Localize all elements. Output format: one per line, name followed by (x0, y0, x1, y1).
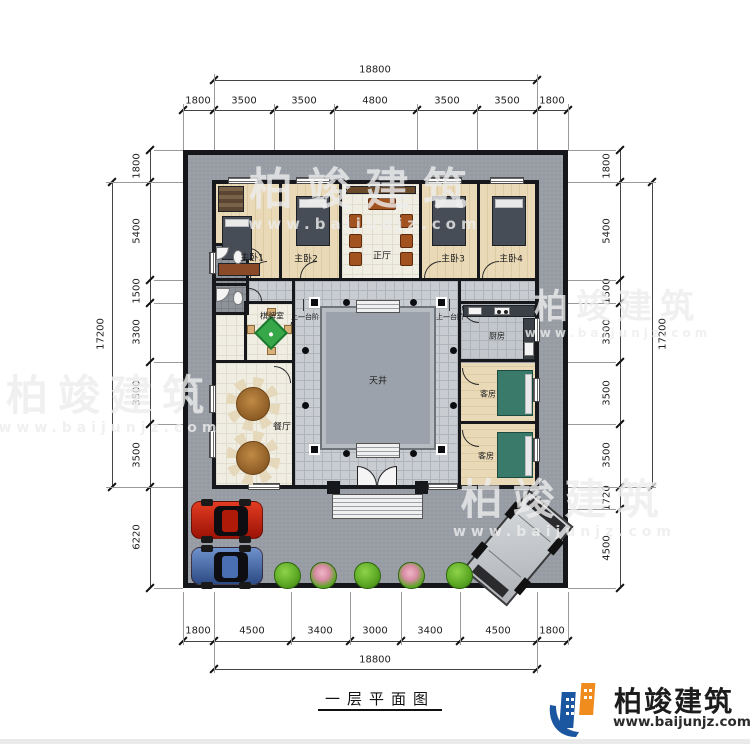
dim-label: 3500 (602, 380, 613, 405)
caption-underline (318, 709, 442, 711)
dim-label: 1800 (185, 96, 210, 107)
shrub (274, 562, 301, 589)
company-website: www.baijunjz.com (613, 714, 750, 730)
window (228, 177, 258, 184)
dim-label: 3000 (362, 626, 387, 637)
stove (494, 307, 510, 315)
wall (339, 182, 342, 280)
dim-line (112, 182, 113, 487)
window (428, 483, 458, 490)
label-master4: 主卧4 (499, 252, 523, 265)
window (533, 378, 540, 402)
dim-label: 1500 (132, 278, 143, 303)
dining-table (236, 441, 270, 475)
window (533, 438, 540, 462)
dim-label: 18800 (359, 65, 391, 76)
label-guest2: 客房 (478, 451, 494, 462)
sink (468, 307, 482, 315)
dim-tick (615, 583, 624, 592)
extension-line (460, 592, 461, 645)
dresser (218, 263, 260, 276)
dim-line (652, 182, 653, 487)
window (209, 430, 216, 458)
dim-label: 1800 (539, 626, 564, 637)
window (209, 385, 216, 413)
dim-label: 6220 (132, 524, 143, 549)
wall (458, 301, 539, 304)
column-dot (302, 347, 309, 354)
toilet (233, 291, 243, 305)
dim-line (183, 641, 568, 642)
shrub (398, 562, 425, 589)
dim-line (214, 669, 537, 670)
column-dot (450, 402, 457, 409)
dim-line (150, 150, 151, 588)
bed (492, 196, 526, 246)
wall (458, 421, 539, 424)
column (436, 444, 447, 455)
label-master3: 主卧3 (441, 252, 465, 265)
dim-label: 4500 (602, 535, 613, 560)
dim-label: 3400 (417, 626, 442, 637)
dining-table (236, 387, 270, 421)
dim-label: 3500 (291, 96, 316, 107)
armchair (400, 214, 413, 228)
dim-label: 3500 (132, 380, 143, 405)
label-master2: 主卧2 (294, 252, 318, 265)
label-dining: 餐厅 (273, 420, 291, 433)
shrub (310, 562, 337, 589)
floorplan-canvas: 18800 1800 3500 3500 4800 3500 3500 1800… (0, 0, 750, 750)
entry-post (415, 481, 428, 494)
extension-line (183, 104, 184, 150)
dim-label: 3500 (132, 442, 143, 467)
wall (419, 182, 422, 280)
dim-label: 4800 (362, 96, 387, 107)
dim-label: 4500 (239, 626, 264, 637)
extension-line (568, 104, 569, 150)
step-arrow (303, 299, 304, 311)
guest-bed (497, 432, 533, 478)
dim-line (620, 150, 621, 588)
window (490, 177, 524, 184)
column-dot (410, 450, 417, 457)
wall (244, 301, 295, 304)
dim-label: 3500 (434, 96, 459, 107)
bed (296, 196, 330, 246)
fridge (524, 342, 534, 356)
window (428, 177, 462, 184)
dim-label: 18800 (359, 655, 391, 666)
dim-label: 3500 (231, 96, 256, 107)
extension-line (568, 150, 616, 151)
guest-bed (497, 370, 533, 416)
dim-line (183, 110, 568, 111)
armchair (349, 252, 362, 266)
dim-label: 1720 (602, 485, 613, 510)
dim-label: 17200 (658, 318, 669, 350)
column-dot (343, 299, 350, 306)
dim-label: 3400 (307, 626, 332, 637)
label-step-right: 上一台阶 (436, 312, 464, 322)
wall (212, 283, 249, 286)
column-dot (343, 450, 350, 457)
dim-line (214, 80, 537, 81)
extension-line (154, 588, 183, 589)
dim-label: 1800 (185, 626, 210, 637)
dim-label: 1800 (539, 96, 564, 107)
dim-label: 4500 (485, 626, 510, 637)
wall (477, 182, 480, 280)
label-mahjong: 棋牌室 (260, 311, 284, 322)
extension-line (214, 592, 215, 673)
dim-label: 3300 (602, 319, 613, 344)
armchair (349, 234, 362, 248)
entry-post (327, 481, 340, 494)
footer-divider (0, 739, 750, 744)
bed (432, 196, 466, 246)
dim-label: 3300 (132, 319, 143, 344)
column-dot (410, 299, 417, 306)
armchair (349, 214, 362, 228)
step-arrow (449, 299, 450, 311)
column (309, 444, 320, 455)
red-car (191, 501, 263, 539)
label-master1: 主卧1 (240, 251, 264, 264)
wall (212, 278, 539, 281)
column-dot (450, 347, 457, 354)
extension-line (183, 592, 184, 645)
hall-cabinet (346, 186, 416, 194)
shrub (446, 562, 473, 589)
shrub (354, 562, 381, 589)
wall (212, 360, 295, 363)
armchair (400, 234, 413, 248)
wardrobe (218, 186, 244, 212)
column-dot (302, 402, 309, 409)
sofa (368, 198, 396, 210)
extension-line (154, 150, 183, 151)
wall (279, 182, 282, 280)
label-guest1: 客房 (480, 389, 496, 400)
dim-label: 17200 (96, 318, 107, 350)
label-kitchen: 厨房 (489, 331, 505, 342)
dim-label: 1500 (602, 278, 613, 303)
extension-line (291, 592, 292, 645)
dim-label: 3500 (602, 442, 613, 467)
entry-steps (332, 494, 423, 519)
extension-line (568, 509, 616, 510)
dim-label: 5400 (132, 218, 143, 243)
dim-label: 1800 (132, 153, 143, 178)
dim-label: 3500 (494, 96, 519, 107)
label-main-hall: 正厅 (373, 249, 391, 262)
column (309, 297, 320, 308)
label-courtyard: 天井 (369, 374, 387, 387)
armchair (400, 252, 413, 266)
extension-line (350, 592, 351, 645)
blue-car (191, 547, 263, 585)
extension-line (537, 592, 538, 673)
extension-line (568, 592, 569, 645)
dim-label: 5400 (602, 218, 613, 243)
window (296, 177, 330, 184)
drawing-caption: 一层平面图 (300, 688, 460, 709)
column (436, 297, 447, 308)
label-step-left: 上一台阶 (291, 312, 319, 322)
extension-line (401, 592, 402, 645)
dim-label: 1800 (602, 153, 613, 178)
extension-line (568, 588, 616, 589)
company-logo-icon (546, 674, 610, 740)
window (209, 252, 216, 274)
